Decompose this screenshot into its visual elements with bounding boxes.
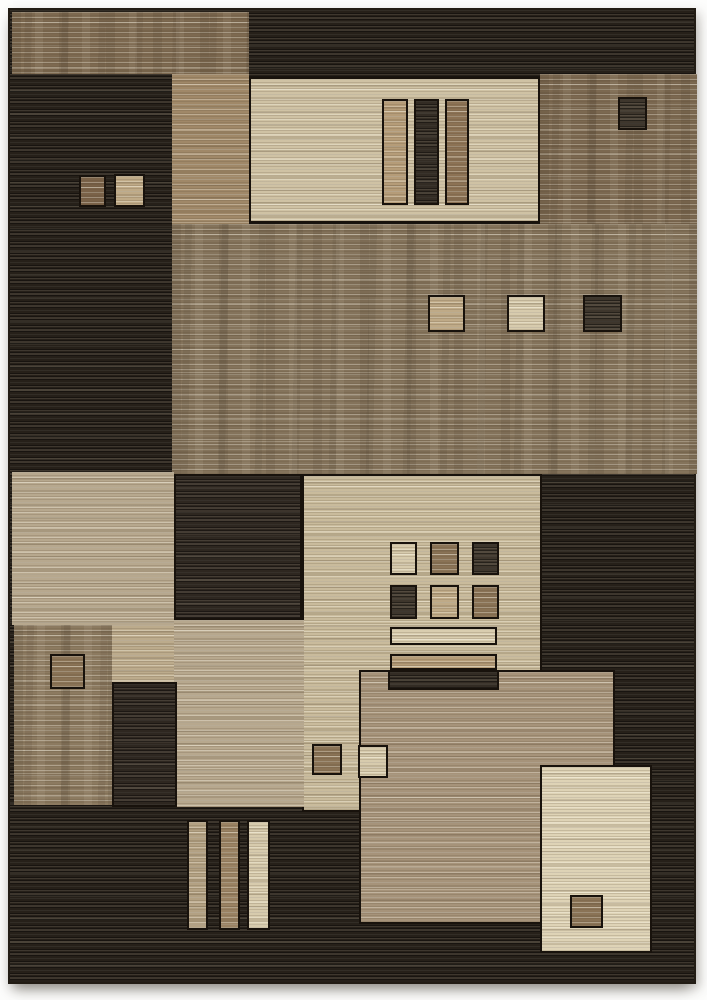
- grid-square-cream: [390, 542, 417, 575]
- grid-square-dark-2: [390, 585, 417, 619]
- rug: [8, 8, 696, 984]
- brown-panel-low-left: [14, 625, 112, 805]
- square-outline-low-left: [50, 654, 85, 689]
- square-brown-mid: [312, 744, 342, 775]
- square-dark-top-right: [618, 97, 647, 130]
- bar-dark-top: [414, 99, 439, 205]
- bar-tan-mid: [390, 654, 497, 670]
- beige-notch: [112, 625, 174, 682]
- square-brown-top-left: [79, 175, 106, 207]
- beige-panel-left: [12, 472, 174, 625]
- square-tan-field: [428, 295, 465, 332]
- top-strip-brown: [12, 12, 249, 74]
- tan-field: [172, 224, 697, 474]
- bar-cream-mid: [390, 627, 497, 645]
- bar-bottom-brown: [219, 820, 240, 930]
- tan-column: [172, 74, 249, 224]
- square-dark-field: [583, 295, 622, 332]
- bar-dark-cross: [388, 670, 499, 690]
- bar-bottom-cream: [247, 820, 270, 930]
- grid-square-brown-2: [472, 585, 499, 619]
- beige-center-low: [174, 620, 304, 807]
- square-brown-bottom-right: [570, 895, 603, 928]
- dark-column-low: [112, 682, 177, 807]
- square-cream-small: [358, 745, 388, 778]
- grid-square-tan: [430, 585, 459, 619]
- grid-square-brown: [430, 542, 459, 575]
- dark-square-mid: [174, 474, 302, 620]
- bar-bottom-tan: [187, 820, 208, 930]
- photo-stage: [0, 0, 707, 1000]
- square-cream-field: [507, 295, 545, 332]
- bar-brown-top: [445, 99, 469, 205]
- square-tan-top-left: [114, 174, 145, 207]
- grid-square-dark: [472, 542, 499, 575]
- bar-tan-top: [382, 99, 408, 205]
